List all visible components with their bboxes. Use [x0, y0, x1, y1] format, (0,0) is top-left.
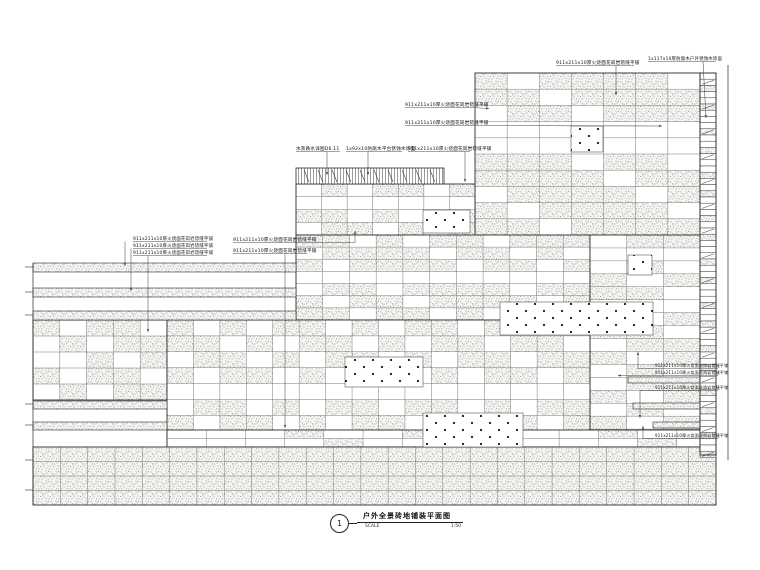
leader-arrowhead — [464, 179, 466, 182]
annotation-label: 911x211x10厚火烧面花岗岩错缝平铺 — [233, 236, 317, 243]
bottom-steps-grid — [33, 447, 716, 505]
annotation-label: 911x211x10厚火烧面花岗岩错缝平铺 — [233, 247, 317, 254]
annotation-label: 911x211x10厚火烧面花岗岩错缝平铺 — [405, 101, 489, 108]
stipple-step-band — [33, 401, 167, 409]
title-block: 1 户外全景砖地铺装平面图 SCALE 1:50 — [330, 511, 463, 533]
dot-paving-rect — [345, 357, 423, 387]
scale-label: SCALE — [365, 524, 379, 529]
stipple-step-band — [33, 263, 296, 272]
vhatch-band — [296, 168, 444, 184]
dot-paving-rect — [500, 302, 653, 335]
deck-strip — [700, 73, 716, 457]
annotation-label: 911x211x10厚火烧面花岗岩错缝平铺 — [655, 369, 728, 375]
upper-terrace-grid — [475, 73, 700, 235]
annotation-label: 911x211x10厚火烧面花岗岩错缝平铺 — [133, 235, 213, 242]
detail-number: 1 — [337, 519, 342, 528]
annotation-label: 911x211x10厚火烧面花岗岩错缝平铺 — [556, 59, 640, 66]
dot-paving-rect — [628, 255, 652, 275]
paving-plan-canvas: 911x211x10厚火烧面花岗岩错缝平铺1x117x10厚防腐木户外锈蚀木饰面… — [0, 0, 760, 570]
annotation-label: 911x211x10厚火烧面花岗岩错缝平铺 — [405, 119, 489, 126]
paving-plan-drawing: 911x211x10厚火烧面花岗岩错缝平铺1x117x10厚防腐木户外锈蚀木饰面… — [0, 0, 760, 570]
annotation-label: 911x211x10厚火烧面花岗岩错缝平铺 — [655, 432, 728, 438]
dot-paving-rect — [423, 413, 523, 447]
drawing-title: 户外全景砖地铺装平面图 — [357, 511, 463, 523]
stipple-step-band — [33, 422, 167, 430]
dot-paving-rect — [571, 126, 603, 152]
annotation-label: 水景跌水详图D6.11 — [296, 145, 340, 152]
scale-value: 1:50 — [451, 524, 461, 529]
title-leader-line — [349, 523, 357, 524]
annotation-label: 911x211x10厚火烧面花岗岩错缝平铺 — [133, 249, 213, 256]
detail-number-bubble: 1 — [330, 514, 349, 533]
lower-left-grid — [33, 320, 167, 400]
annotation-label: 1x117x10厚防腐木户外锈蚀木饰面 — [648, 55, 722, 62]
stipple-step-band — [33, 311, 296, 320]
dot-paving-rect — [423, 210, 470, 233]
annotation-label: 911x211x10厚火烧面花岗岩错缝平铺 — [655, 384, 728, 390]
annotation-label: 911x211x10厚火烧面花岗岩错缝平铺 — [408, 145, 492, 152]
annotation-label: 911x211x10厚火烧面花岗岩错缝平铺 — [655, 362, 728, 368]
annotation-label: 1x92x10防腐木平台锈蚀木饰面 — [346, 145, 416, 152]
stipple-step-band — [33, 288, 296, 297]
annotation-label: 911x211x10厚火烧面花岗岩错缝平铺 — [133, 242, 213, 249]
